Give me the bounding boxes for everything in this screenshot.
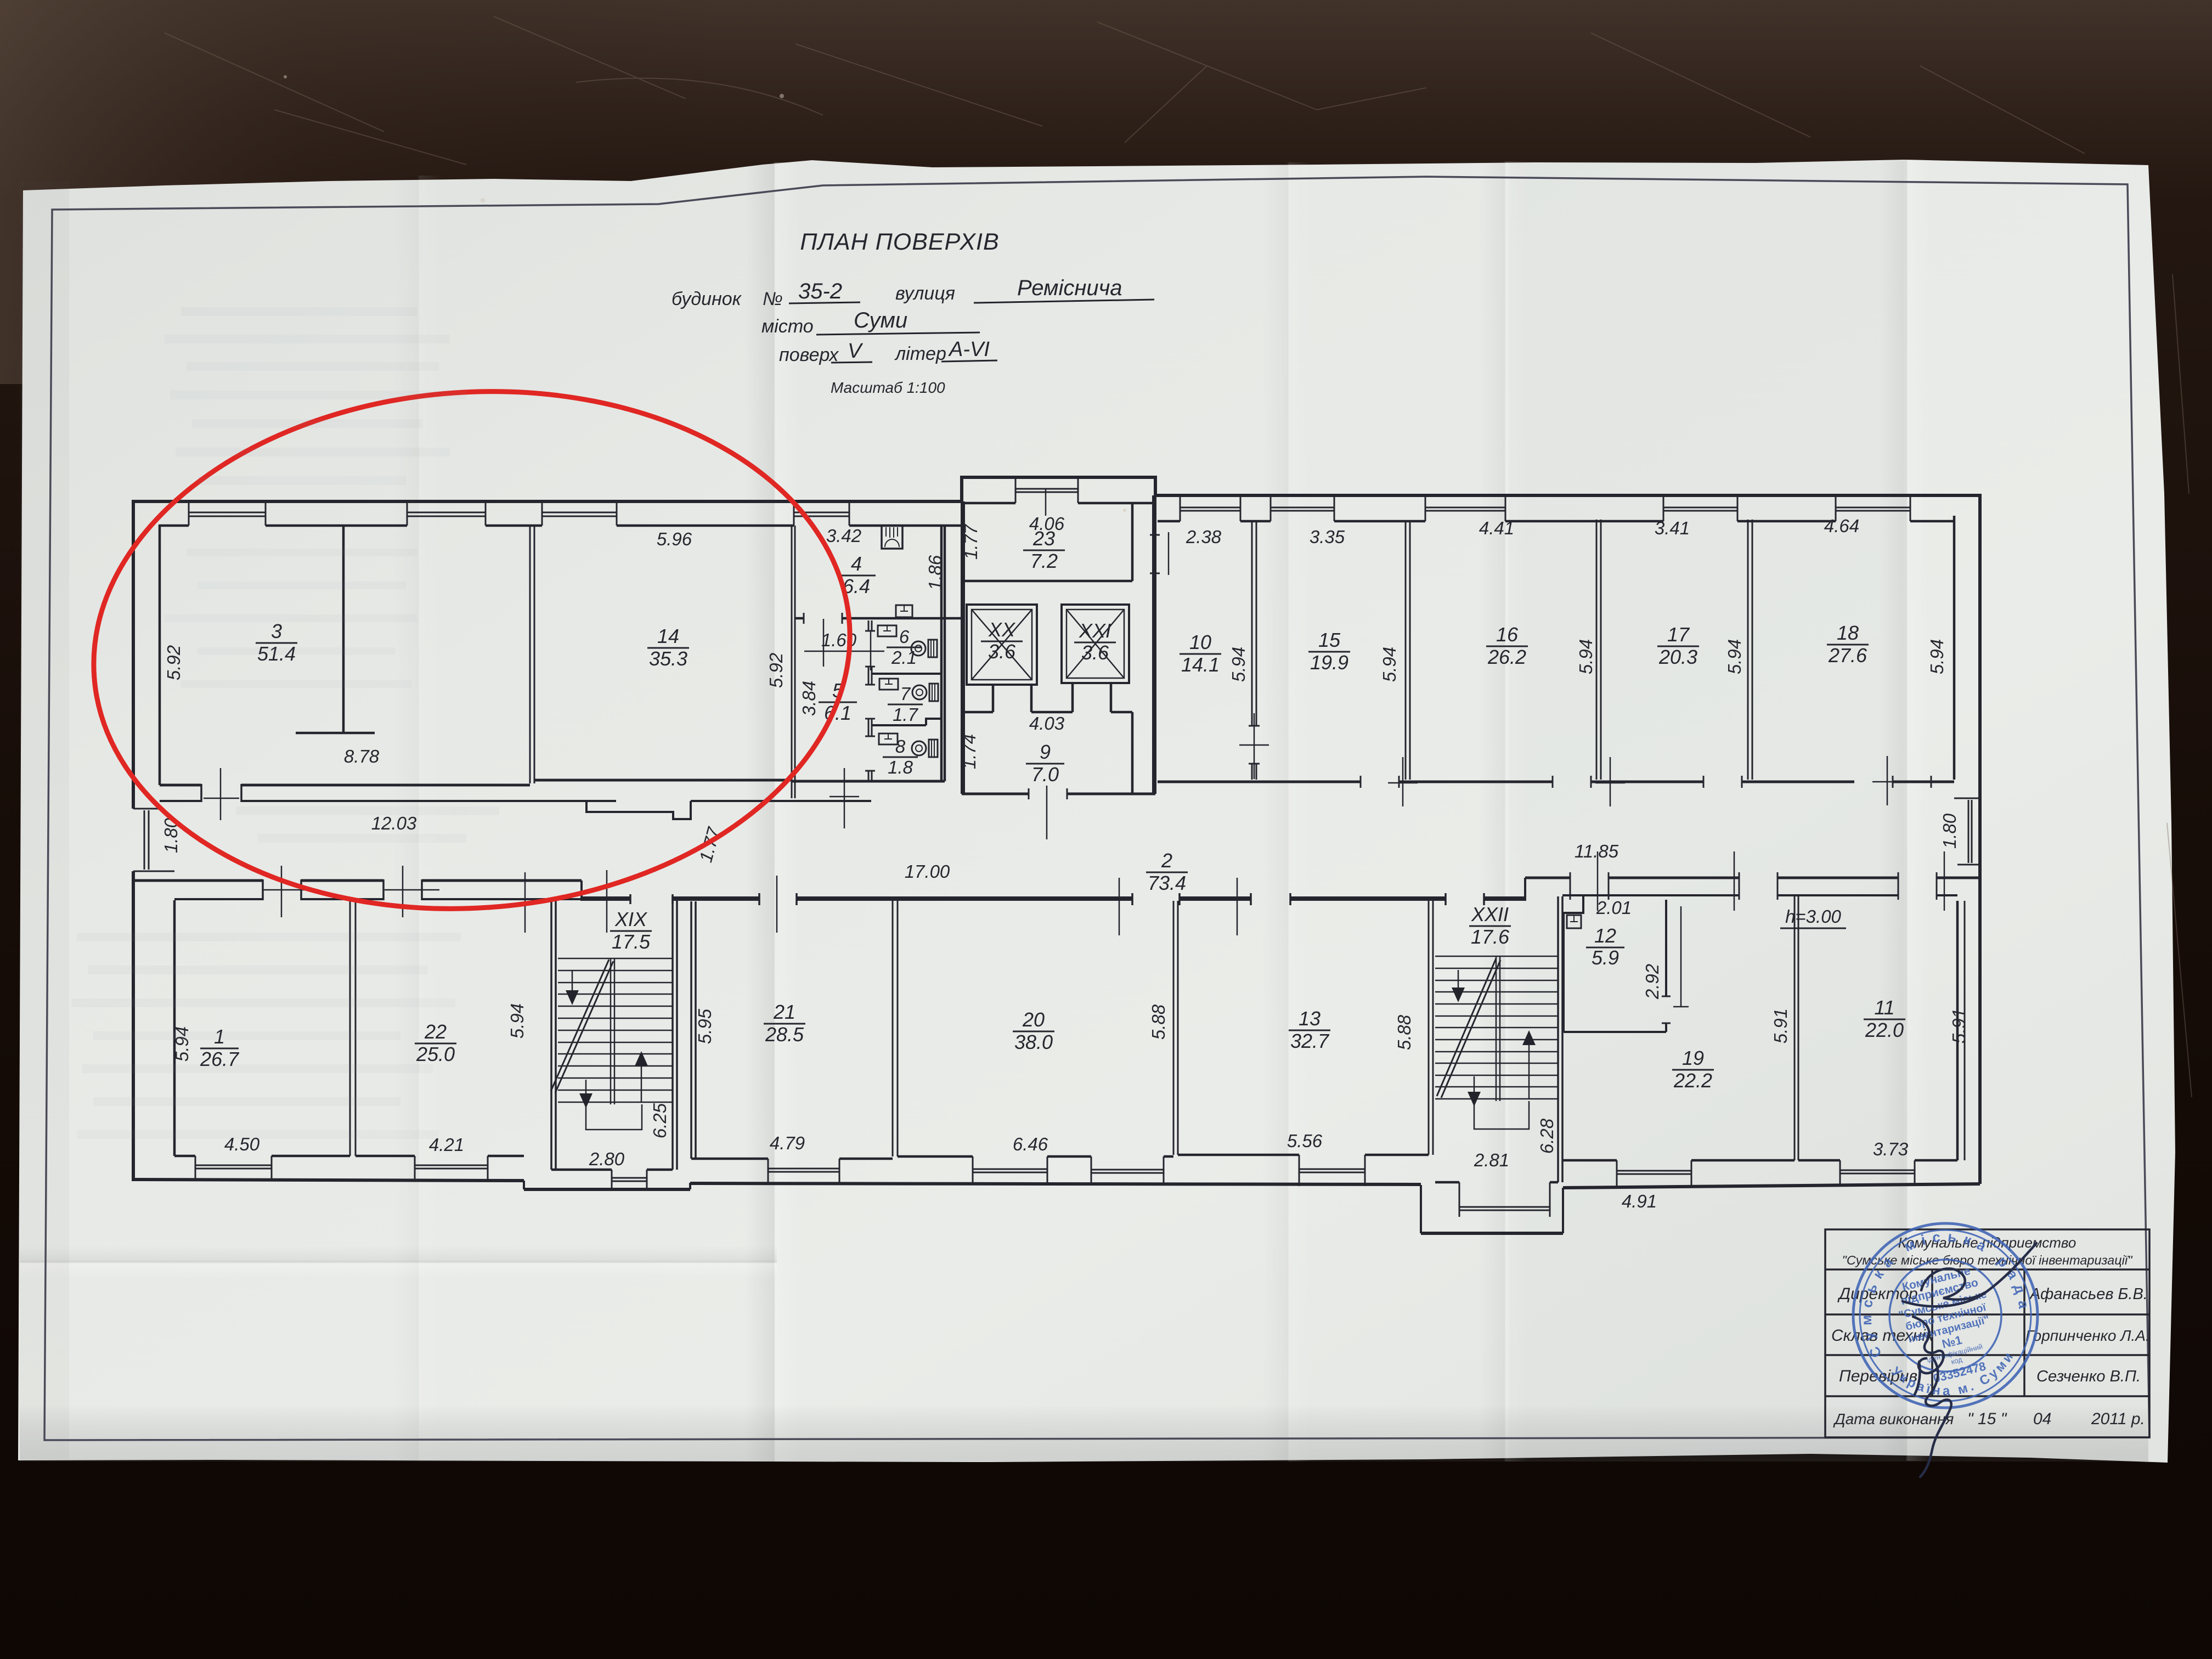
svg-text:9: 9 <box>1040 741 1051 763</box>
svg-text:73.4: 73.4 <box>1148 872 1186 894</box>
svg-text:5.91: 5.91 <box>1770 1008 1791 1043</box>
svg-text:Суми: Суми <box>854 308 907 332</box>
svg-text:літер: літер <box>894 343 946 364</box>
svg-text:5.92: 5.92 <box>766 653 786 688</box>
svg-text:5.94: 5.94 <box>1724 639 1745 674</box>
svg-text:8.78: 8.78 <box>344 746 380 766</box>
svg-text:7.2: 7.2 <box>1030 550 1058 572</box>
svg-text:5.92: 5.92 <box>163 645 184 680</box>
svg-text:ПЛАН ПОВЕРХІВ: ПЛАН ПОВЕРХІВ <box>800 229 999 255</box>
svg-text:32.7: 32.7 <box>1290 1030 1330 1052</box>
svg-text:1.8: 1.8 <box>888 757 913 777</box>
svg-text:XXII: XXII <box>1471 903 1509 926</box>
svg-text:будинок: будинок <box>672 289 742 309</box>
svg-text:6.46: 6.46 <box>1013 1134 1048 1154</box>
svg-text:2.92: 2.92 <box>1642 964 1662 1000</box>
svg-text:Афанасьев Б.В.: Афанасьев Б.В. <box>2029 1285 2148 1303</box>
svg-text:15: 15 <box>1318 629 1341 651</box>
svg-text:5.56: 5.56 <box>1287 1131 1323 1151</box>
svg-text:2.38: 2.38 <box>1186 527 1222 547</box>
svg-text:3: 3 <box>271 620 282 642</box>
svg-text:10: 10 <box>1189 631 1211 653</box>
svg-text:5.88: 5.88 <box>1148 1004 1169 1040</box>
svg-text:4.03: 4.03 <box>1029 713 1065 733</box>
svg-text:5.94: 5.94 <box>1927 639 1947 674</box>
svg-text:1.86: 1.86 <box>925 555 945 590</box>
svg-text:14.1: 14.1 <box>1181 653 1220 676</box>
svg-text:27.6: 27.6 <box>1828 644 1867 667</box>
svg-text:4: 4 <box>851 552 862 575</box>
svg-text:6.28: 6.28 <box>1537 1118 1557 1154</box>
svg-text:XIX: XIX <box>614 908 648 930</box>
svg-text:XX: XX <box>988 618 1016 641</box>
svg-text:5.94: 5.94 <box>507 1003 527 1039</box>
svg-text:16: 16 <box>1496 623 1519 646</box>
svg-text:" 15 ": " 15 " <box>1967 1410 2007 1428</box>
svg-text:22: 22 <box>424 1020 447 1043</box>
svg-text:XXI: XXI <box>1079 619 1111 642</box>
svg-text:22.2: 22.2 <box>1673 1069 1712 1092</box>
svg-text:7: 7 <box>900 684 911 704</box>
svg-text:5.95: 5.95 <box>695 1008 715 1044</box>
svg-text:38.0: 38.0 <box>1014 1031 1053 1053</box>
svg-text:1.77: 1.77 <box>961 523 981 560</box>
svg-text:5.91: 5.91 <box>1949 1008 1969 1043</box>
svg-text:35-2: 35-2 <box>798 279 842 303</box>
svg-text:3.35: 3.35 <box>1310 527 1345 547</box>
svg-text:№: № <box>763 289 783 309</box>
svg-text:2.01: 2.01 <box>1596 898 1632 918</box>
svg-text:25.0: 25.0 <box>416 1043 455 1065</box>
svg-text:5.94: 5.94 <box>1576 639 1596 674</box>
svg-text:3.73: 3.73 <box>1873 1139 1909 1159</box>
svg-text:5.94: 5.94 <box>1228 647 1249 682</box>
svg-text:20: 20 <box>1022 1008 1045 1031</box>
svg-text:Реміснича: Реміснича <box>1017 276 1122 300</box>
svg-text:5.96: 5.96 <box>657 529 692 549</box>
svg-text:4.91: 4.91 <box>1622 1191 1657 1211</box>
svg-text:20.3: 20.3 <box>1658 646 1697 668</box>
svg-text:3.41: 3.41 <box>1655 518 1690 538</box>
svg-text:6: 6 <box>899 627 910 647</box>
svg-text:28.5: 28.5 <box>765 1023 804 1046</box>
svg-text:2.81: 2.81 <box>1474 1150 1509 1170</box>
svg-text:2: 2 <box>1161 849 1172 872</box>
svg-text:1.7: 1.7 <box>893 704 919 725</box>
svg-text:3.84: 3.84 <box>799 681 819 716</box>
svg-text:4.64: 4.64 <box>1824 516 1859 536</box>
svg-text:14: 14 <box>657 625 679 647</box>
svg-text:12: 12 <box>1594 924 1616 947</box>
svg-text:2.80: 2.80 <box>589 1149 625 1169</box>
svg-text:5.88: 5.88 <box>1394 1014 1414 1050</box>
svg-text:22.0: 22.0 <box>1865 1019 1904 1041</box>
svg-text:h=3.00: h=3.00 <box>1785 906 1841 927</box>
svg-text:Масштаб 1:100: Масштаб 1:100 <box>831 379 945 396</box>
svg-text:3.42: 3.42 <box>826 526 861 546</box>
svg-text:17.00: 17.00 <box>905 861 950 882</box>
svg-text:35.3: 35.3 <box>649 647 687 670</box>
svg-text:26.2: 26.2 <box>1487 646 1526 668</box>
svg-text:5.94: 5.94 <box>1379 647 1400 682</box>
svg-text:5.9: 5.9 <box>1592 946 1619 969</box>
svg-text:8: 8 <box>895 736 906 757</box>
svg-text:7.0: 7.0 <box>1031 763 1059 786</box>
svg-text:11: 11 <box>1874 996 1894 1019</box>
svg-text:17.5: 17.5 <box>612 930 651 953</box>
svg-text:1.80: 1.80 <box>1939 813 1960 849</box>
svg-text:17: 17 <box>1667 623 1690 646</box>
svg-text:2011 р.: 2011 р. <box>2091 1410 2145 1428</box>
svg-text:6.25: 6.25 <box>650 1103 670 1138</box>
svg-text:4.79: 4.79 <box>770 1133 805 1153</box>
svg-text:19: 19 <box>1682 1047 1704 1069</box>
svg-text:Сезченко В.П.: Сезченко В.П. <box>2036 1368 2141 1385</box>
svg-text:місто: місто <box>761 316 814 337</box>
svg-text:3.6: 3.6 <box>1081 641 1109 664</box>
svg-text:Горпинченко Л.А.: Горпинченко Л.А. <box>2025 1327 2150 1344</box>
svg-text:19.9: 19.9 <box>1310 651 1348 674</box>
svg-text:3.6: 3.6 <box>988 640 1016 663</box>
svg-text:12.03: 12.03 <box>371 813 417 833</box>
svg-text:04: 04 <box>2033 1410 2051 1428</box>
svg-text:13: 13 <box>1299 1007 1321 1030</box>
svg-text:4.41: 4.41 <box>1479 518 1514 538</box>
svg-text:1.74: 1.74 <box>959 734 979 769</box>
svg-text:21: 21 <box>773 1001 795 1023</box>
svg-text:Дата виконання: Дата виконання <box>1833 1410 1954 1427</box>
svg-text:17.6: 17.6 <box>1471 926 1510 948</box>
svg-text:2.1: 2.1 <box>891 647 917 668</box>
svg-text:18: 18 <box>1837 622 1859 644</box>
svg-text:V: V <box>848 340 864 363</box>
svg-text:4.06: 4.06 <box>1029 513 1065 534</box>
svg-text:11.85: 11.85 <box>1575 841 1619 861</box>
svg-text:поверх: поверх <box>779 345 839 365</box>
svg-text:вулиця: вулиця <box>895 283 955 304</box>
svg-text:А-VI: А-VI <box>948 338 990 361</box>
